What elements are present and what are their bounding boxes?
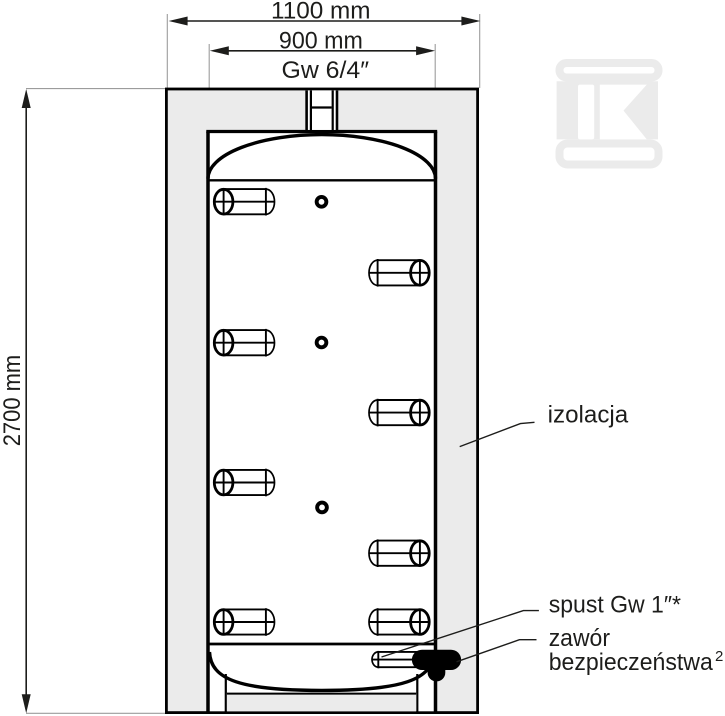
svg-text:2700 mm: 2700 mm: [0, 355, 26, 447]
svg-text:zawór: zawór: [549, 625, 610, 652]
svg-text:900 mm: 900 mm: [279, 28, 363, 55]
svg-text:izolacja: izolacja: [548, 401, 629, 428]
svg-text:Gw 6/4″: Gw 6/4″: [282, 57, 370, 84]
svg-text:1100 mm: 1100 mm: [271, 0, 371, 25]
svg-text:bezpieczeństwa: bezpieczeństwa: [549, 649, 714, 676]
svg-text:2: 2: [715, 648, 723, 665]
svg-text:spust Gw 1″*: spust Gw 1″*: [549, 592, 681, 619]
